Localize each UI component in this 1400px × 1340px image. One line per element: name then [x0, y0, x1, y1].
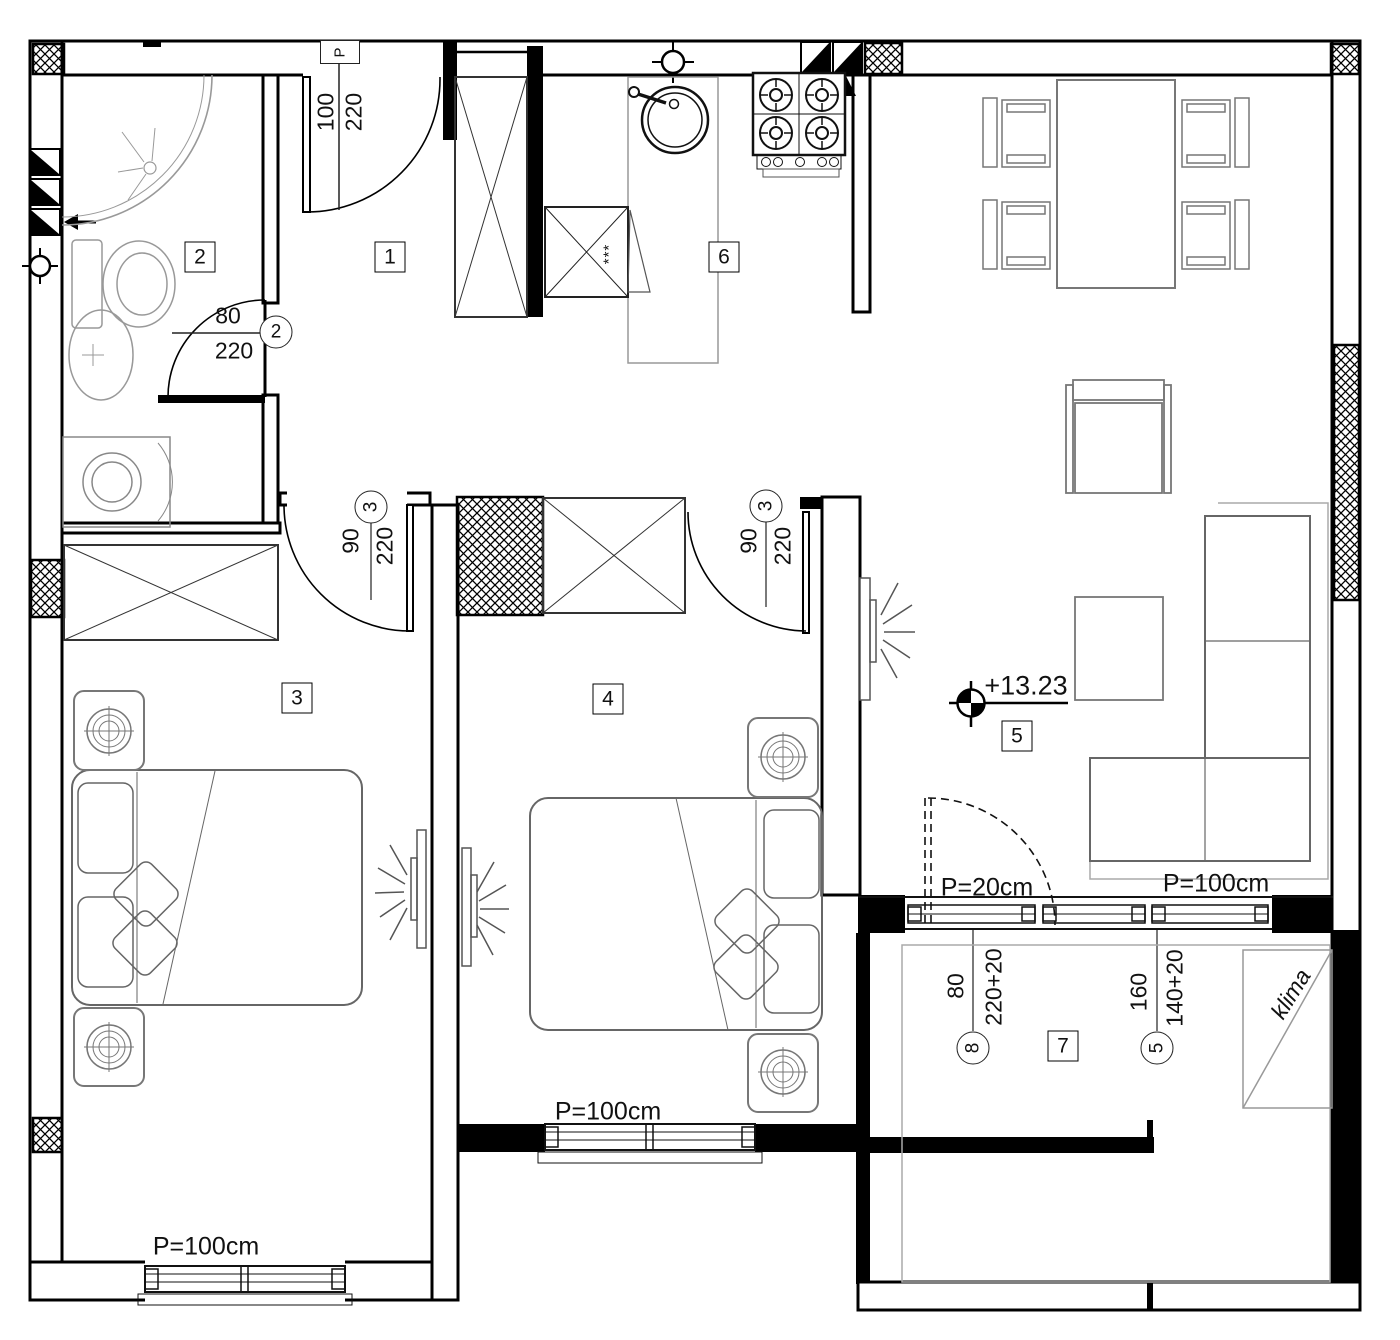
bed-4: [530, 798, 822, 1030]
nightstands-bed3: [74, 691, 144, 1086]
entry-door-width: 100: [315, 93, 338, 131]
bed3-parapet-label: P=100cm: [153, 1235, 259, 1260]
bath-door-mark: 2: [260, 316, 293, 349]
elevation-value: +13.23: [984, 673, 1067, 700]
balcony-parapet-label: P=20cm: [941, 876, 1033, 901]
living-window-mark-text: 5: [1147, 1043, 1166, 1054]
bed4-door-height: 220: [772, 527, 795, 565]
nightstands-bed4: [748, 718, 818, 1112]
bed-3: [72, 770, 362, 1005]
room-label-3: 3: [282, 683, 313, 714]
washing-machine: [63, 437, 172, 527]
tv-living: [860, 578, 915, 700]
shower: [62, 75, 212, 225]
tv-bed4: [462, 848, 509, 966]
room-7-number: 7: [1057, 1036, 1069, 1057]
tv-bed3: [375, 830, 426, 948]
room-label-1: 1: [375, 242, 406, 273]
bed4-parapet-label: P=100cm: [555, 1100, 661, 1125]
living-window-height: 140+20: [1164, 949, 1187, 1026]
balcony-door-mark-text: 8: [963, 1043, 982, 1054]
balcony-door-mark: 8: [957, 1032, 990, 1065]
bath-door-mark-text: 2: [271, 323, 282, 342]
balcony-door-width: 80: [945, 973, 968, 999]
bed3-door-width: 90: [340, 528, 363, 554]
bed3-door-height: 220: [374, 527, 397, 565]
terrace-parapet-label: P=100cm: [1163, 872, 1269, 897]
wardrobe-bed4: [543, 498, 685, 613]
room-4-number: 4: [602, 689, 614, 710]
bed4-door-mark: 3: [750, 490, 783, 523]
dining-chairs: [983, 98, 1249, 269]
room-label-2: 2: [185, 242, 216, 273]
entry-door-height: 220: [343, 93, 366, 131]
bath-door-height: 220: [215, 340, 253, 363]
appliance-stars: ***: [602, 244, 617, 265]
entry-door-tag: P: [320, 40, 360, 64]
bed3-door-mark-text: 3: [361, 502, 380, 513]
windows: [138, 897, 1333, 1305]
room-6-number: 6: [718, 247, 730, 268]
floor-plan: 1 2 3 4 5 6 7 P 100 220 80 220 2 3 90 22…: [0, 0, 1400, 1340]
room-3-number: 3: [291, 688, 303, 709]
living-window-mark: 5: [1141, 1032, 1174, 1065]
wardrobe-hall: [455, 77, 527, 317]
bath-door-width: 80: [215, 305, 241, 328]
bed4-door-width: 90: [738, 528, 761, 554]
room-label-4: 4: [593, 684, 624, 715]
walls: [30, 40, 1360, 1310]
armchair: [1066, 380, 1171, 493]
floor-plan-drawing: [0, 0, 1400, 1340]
coffee-table: [1075, 597, 1163, 700]
balcony-door-height: 220+20: [983, 948, 1006, 1025]
room-5-number: 5: [1011, 726, 1023, 747]
room-1-number: 1: [384, 247, 396, 268]
dining-table: [1057, 80, 1175, 288]
corner-sofa: [1090, 503, 1328, 879]
kitchen-sink: [629, 87, 708, 153]
wardrobe-bed3: [64, 545, 278, 640]
entry-door-tag-text: P: [332, 47, 347, 57]
washbasin: [69, 310, 133, 400]
living-window-width: 160: [1128, 973, 1151, 1011]
stove: [753, 73, 845, 177]
room-label-6: 6: [709, 242, 740, 273]
room-label-7: 7: [1048, 1031, 1079, 1062]
room-label-5: 5: [1002, 721, 1033, 752]
room-2-number: 2: [194, 247, 206, 268]
bed4-door-mark-text: 3: [756, 501, 775, 512]
bed3-door-mark: 3: [355, 491, 388, 524]
dishwasher: [545, 207, 650, 297]
